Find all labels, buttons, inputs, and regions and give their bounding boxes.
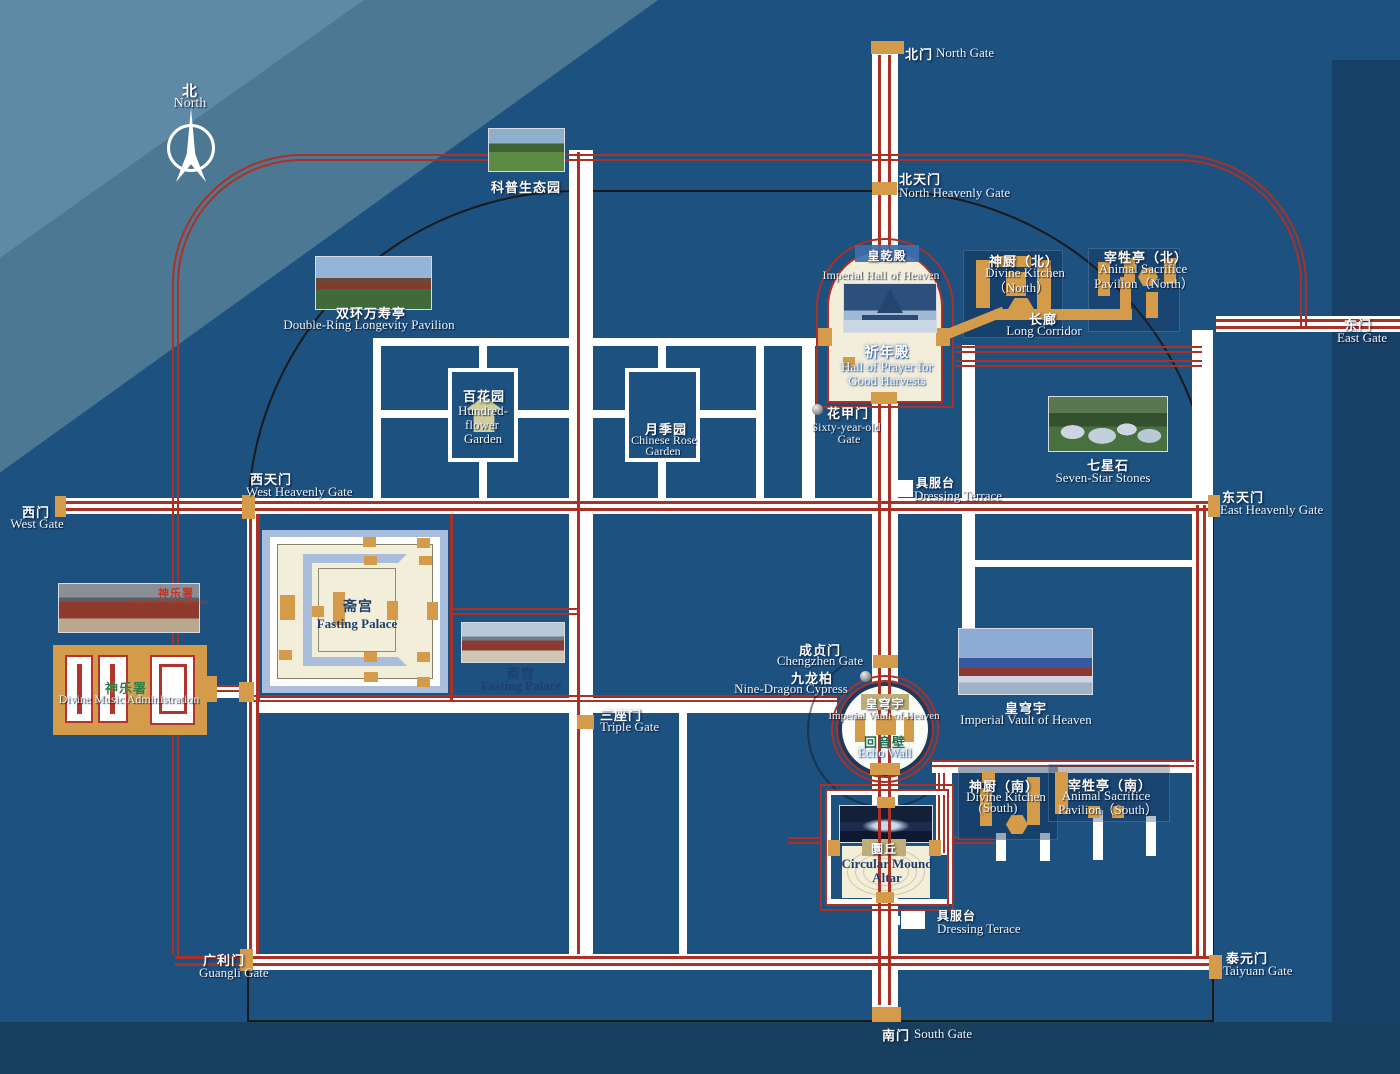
route-eastgate-b bbox=[1216, 326, 1400, 329]
route-eastgate-a bbox=[1216, 319, 1400, 322]
nine-dragon-cypress-icon bbox=[860, 671, 871, 682]
route-south-a bbox=[175, 956, 1213, 959]
label-imperial-hall-en: Imperial Hall of Heaven bbox=[823, 268, 940, 283]
mound-gate-east bbox=[929, 840, 941, 856]
north-gate-bar bbox=[871, 41, 904, 54]
photo-fasting-palace bbox=[461, 622, 565, 663]
palace-gate-n1 bbox=[363, 537, 376, 547]
photo-double-ring-pavilion bbox=[315, 256, 432, 310]
taiyuan-gate-bar bbox=[1209, 955, 1222, 979]
route-we-b bbox=[60, 508, 1210, 511]
echo-south-gate-bar bbox=[870, 763, 900, 775]
label-imperial-vault-en: Imperial Vault of Heaven bbox=[828, 710, 939, 722]
label-triple-gate-en: Triple Gate bbox=[600, 719, 659, 735]
label-divine-kitchen-north-en2: （North） bbox=[993, 277, 1049, 296]
route-mound-west bbox=[788, 837, 821, 844]
label-animal-sacrifice-north-en2: Pavilion（North） bbox=[1094, 273, 1194, 292]
hall-photo-cone bbox=[877, 289, 903, 313]
route-palace-west bbox=[257, 514, 260, 700]
divine-music-tab bbox=[207, 676, 217, 702]
hall-south-gate bbox=[871, 392, 897, 404]
route-eastwall-b bbox=[1203, 505, 1206, 956]
label-fasting-palace-photo-en: Fasting Palace bbox=[481, 678, 562, 694]
label-guangli-gate-en: Guangli Gate bbox=[199, 965, 269, 981]
label-seven-star-stones-en: Seven-Star Stones bbox=[1056, 470, 1151, 486]
label-imperial-vault-photo-en: Imperial Vault of Heaven bbox=[960, 712, 1092, 728]
label-eco-garden-zh: 科普生态园 bbox=[491, 177, 561, 196]
route-corridor-b bbox=[955, 360, 1202, 367]
label-east-heavenly-gate-en: East Heavenly Gate bbox=[1220, 502, 1323, 518]
temple-of-heaven-park-map: 北North北门North Gate科普生态园北天门North Heavenly… bbox=[0, 0, 1400, 1074]
label-hall-of-prayer-en2: Good Harvests bbox=[848, 373, 926, 389]
photo-imperial-vault bbox=[958, 628, 1093, 695]
north-heavenly-gate-bar bbox=[872, 182, 897, 195]
label-divine-music-en: Divine Music Administration bbox=[59, 692, 200, 707]
label-animal-sacrifice-south-en2: Pavilion（South） bbox=[1058, 799, 1158, 818]
label-south-gate-zh: 南门 bbox=[882, 1025, 910, 1044]
label-divine-kitchen-south-en2: (South) bbox=[979, 800, 1018, 816]
palace-gate-n4 bbox=[419, 556, 432, 565]
label-fasting-palace-en: Fasting Palace bbox=[317, 616, 398, 632]
mound-gate-west bbox=[828, 840, 840, 856]
hall-photo-base bbox=[862, 315, 918, 320]
mound-gate-south bbox=[876, 892, 894, 903]
label-imperial-hall-zh: 皇乾殿 bbox=[867, 247, 906, 264]
route-south-b bbox=[175, 963, 1213, 966]
label-east-gate-en: East Gate bbox=[1337, 330, 1387, 346]
label-circular-mound-en2: Altar bbox=[872, 870, 902, 886]
divine-music-gate-bar bbox=[239, 682, 254, 702]
label-north-gate-zh: 北门 bbox=[905, 44, 933, 63]
route-corridor-a bbox=[955, 346, 1202, 353]
palace-gate-w bbox=[279, 650, 292, 660]
east-heavenly-gate-bar bbox=[1208, 495, 1220, 517]
dressing-terrace-south-icon bbox=[901, 911, 925, 929]
label-sixty-year-old-gate-en2: Gate bbox=[838, 432, 861, 447]
label-circular-mound-zh: 圜丘 bbox=[871, 840, 897, 857]
palace-gate-s4 bbox=[417, 677, 430, 687]
label-dressing-terrace-north-en: Dressing Terrace bbox=[914, 488, 1002, 504]
label-dressing-terrace-south-en: Dressing Terace bbox=[937, 921, 1021, 937]
sixty-year-old-gate-icon bbox=[812, 404, 823, 415]
label-echo-wall-en: Echo Wall bbox=[858, 745, 912, 761]
label-south-gate-en: South Gate bbox=[914, 1026, 972, 1042]
bg-strip-right bbox=[1332, 60, 1400, 1022]
palace-block-1 bbox=[280, 595, 295, 620]
route-palace-right bbox=[450, 514, 453, 700]
palace-east-gate bbox=[427, 602, 438, 620]
label-long-corridor-en: Long Corridor bbox=[1006, 323, 1081, 339]
chengzhen-gate-bar bbox=[873, 655, 898, 668]
label-fasting-palace-zh: 斋宫 bbox=[343, 596, 373, 616]
label-chengzhen-gate-en: Chengzhen Gate bbox=[777, 653, 863, 669]
bg-strip-bottom bbox=[0, 1022, 1400, 1074]
label-north-gate-en: North Gate bbox=[936, 45, 994, 61]
photo-eco-garden bbox=[488, 128, 565, 172]
label-nine-dragon-cypress-en: Nine-Dragon Cypress bbox=[734, 681, 848, 697]
palace-gate-s2 bbox=[417, 652, 430, 662]
mound-gate-north bbox=[877, 797, 895, 808]
route-palace-east bbox=[452, 608, 578, 615]
west-gate-bar bbox=[55, 496, 66, 517]
hall-west-gate bbox=[818, 328, 832, 346]
palace-gate-n2 bbox=[417, 538, 430, 548]
route-eco-vertical bbox=[577, 152, 580, 954]
label-chinese-rose-garden-en2: Garden bbox=[645, 444, 680, 459]
label-west-heavenly-gate-en: West Heavenly Gate bbox=[246, 484, 353, 500]
label-double-ring-en: Double-Ring Longevity Pavilion bbox=[283, 317, 454, 333]
palace-gate-s3 bbox=[364, 672, 378, 682]
label-west-gate-en: West Gate bbox=[10, 516, 63, 532]
sacrifice-north-b4 bbox=[1146, 292, 1158, 318]
triple-gate-bar bbox=[577, 715, 594, 729]
label-compass-en: North bbox=[174, 96, 207, 112]
label-north-heavenly-gate-en: North Heavenly Gate bbox=[899, 185, 1010, 201]
photo-seven-star-stones bbox=[1048, 396, 1168, 452]
palace-gate-s1 bbox=[364, 652, 377, 662]
route-eastwall-a bbox=[1196, 505, 1199, 956]
label-taiyuan-gate-en: Taiyuan Gate bbox=[1223, 963, 1292, 979]
label-hundred-flower-garden-en3: Garden bbox=[464, 431, 502, 447]
palace-gate-n3 bbox=[364, 556, 377, 565]
route-westwall-a bbox=[249, 514, 252, 954]
label-divine-music-photo-en: Divine Music Administration bbox=[126, 598, 208, 606]
south-gate-bar bbox=[872, 1007, 901, 1022]
route-we-a bbox=[60, 501, 1210, 504]
